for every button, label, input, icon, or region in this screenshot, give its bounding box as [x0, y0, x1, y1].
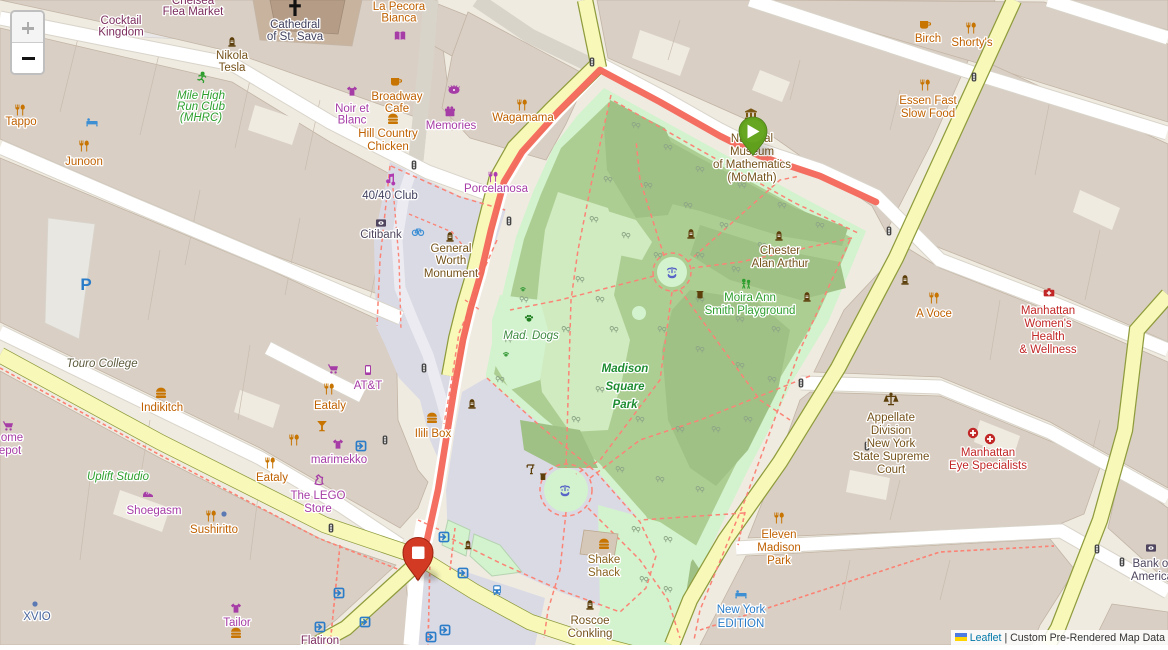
svg-text:Manhattan: Manhattan: [1021, 305, 1075, 317]
svg-text:Bank of: Bank of: [1133, 558, 1168, 570]
svg-text:Park: Park: [613, 399, 639, 411]
svg-text:Manhattan: Manhattan: [961, 447, 1015, 459]
svg-text:XVIO: XVIO: [23, 611, 51, 623]
svg-text:P: P: [80, 275, 91, 294]
svg-text:Tappo: Tappo: [5, 116, 36, 128]
svg-text:Junoon: Junoon: [65, 156, 103, 168]
svg-text:New York: New York: [867, 438, 916, 450]
svg-text:Madison: Madison: [757, 542, 800, 554]
svg-text:A Voce: A Voce: [916, 308, 952, 320]
svg-text:Wagamama: Wagamama: [492, 112, 554, 124]
svg-text:Mad. Dogs: Mad. Dogs: [503, 330, 559, 342]
svg-text:Eye Specialists: Eye Specialists: [949, 460, 1027, 472]
svg-text:ome: ome: [1, 432, 23, 444]
svg-text:Essen Fast: Essen Fast: [899, 95, 957, 107]
svg-text:Uplift Studio: Uplift Studio: [87, 471, 150, 483]
svg-text:Chester: Chester: [760, 245, 800, 257]
svg-text:Shake: Shake: [588, 554, 621, 566]
svg-text:Blanc: Blanc: [338, 115, 367, 127]
svg-text:Shorty's: Shorty's: [951, 37, 992, 49]
svg-text:Tesla: Tesla: [219, 62, 246, 74]
svg-text:(MoMath): (MoMath): [727, 172, 776, 184]
svg-text:marimekko: marimekko: [311, 454, 367, 466]
svg-text:Shack: Shack: [588, 567, 620, 579]
svg-text:of Mathematics: of Mathematics: [713, 159, 791, 171]
svg-text:Broadway: Broadway: [371, 91, 422, 103]
svg-text:Bianca: Bianca: [381, 13, 417, 25]
svg-text:The LEGO: The LEGO: [291, 490, 346, 502]
svg-text:America: America: [1131, 571, 1168, 583]
svg-text:Cocktail: Cocktail: [101, 15, 142, 27]
svg-text:Store: Store: [304, 503, 332, 515]
svg-text:Eataly: Eataly: [314, 400, 346, 412]
svg-text:Noir et: Noir et: [335, 103, 370, 115]
svg-text:Tailor: Tailor: [223, 617, 251, 629]
svg-text:Smith Playground: Smith Playground: [705, 305, 796, 317]
svg-text:General: General: [431, 243, 472, 255]
svg-text:Touro College: Touro College: [66, 358, 137, 370]
svg-text:Slow Food: Slow Food: [901, 108, 955, 120]
svg-text:(MHRC): (MHRC): [180, 112, 222, 124]
svg-text:State Supreme: State Supreme: [853, 451, 930, 463]
svg-text:New York: New York: [717, 604, 766, 616]
svg-text:Kingdom: Kingdom: [98, 27, 143, 39]
svg-text:of St. Sava: of St. Sava: [267, 31, 324, 43]
svg-text:Nikola: Nikola: [216, 50, 249, 62]
svg-text:AT&T: AT&T: [354, 380, 383, 392]
svg-text:Chicken: Chicken: [367, 141, 409, 153]
svg-text:Madison: Madison: [602, 363, 649, 375]
svg-text:Eataly: Eataly: [256, 472, 288, 484]
svg-text:Indikitch: Indikitch: [141, 402, 183, 414]
svg-text:Appellate: Appellate: [867, 412, 915, 424]
svg-text:Porcelanosa: Porcelanosa: [464, 183, 529, 195]
svg-text:Roscoe: Roscoe: [571, 615, 610, 627]
svg-text:Alan Arthur: Alan Arthur: [752, 258, 809, 270]
svg-text:Monument: Monument: [424, 268, 479, 280]
svg-text:Square: Square: [606, 381, 646, 393]
svg-text:Cafe: Cafe: [385, 103, 409, 115]
svg-text:Moira Ann: Moira Ann: [724, 292, 776, 304]
svg-text:40/40 Club: 40/40 Club: [362, 190, 418, 202]
svg-text:La Pecora: La Pecora: [373, 1, 426, 13]
svg-text:Memories: Memories: [426, 120, 477, 132]
svg-text:Health: Health: [1031, 331, 1064, 343]
svg-text:Birch: Birch: [915, 33, 941, 45]
svg-text:Cathedral: Cathedral: [270, 19, 320, 31]
svg-text:Ilili Box: Ilili Box: [415, 428, 452, 440]
svg-text:Conkling: Conkling: [568, 628, 613, 640]
svg-text:Hill Country: Hill Country: [358, 128, 418, 140]
svg-text:Sushiritto: Sushiritto: [190, 524, 238, 536]
svg-text:Citibank: Citibank: [360, 229, 402, 241]
svg-text:Worth: Worth: [436, 255, 466, 267]
svg-text:Women's: Women's: [1024, 318, 1072, 330]
svg-text:& Wellness: & Wellness: [1019, 344, 1077, 356]
svg-text:Eleven: Eleven: [761, 529, 796, 541]
svg-text:Flatiron: Flatiron: [301, 635, 339, 645]
svg-text:Court: Court: [877, 464, 906, 476]
svg-text:Shoegasm: Shoegasm: [127, 505, 182, 517]
svg-text:epot: epot: [0, 445, 22, 457]
svg-text:Park: Park: [767, 555, 791, 567]
svg-text:Division: Division: [871, 425, 911, 437]
svg-text:Flea Market: Flea Market: [163, 6, 225, 18]
svg-text:EDITION: EDITION: [718, 618, 765, 630]
